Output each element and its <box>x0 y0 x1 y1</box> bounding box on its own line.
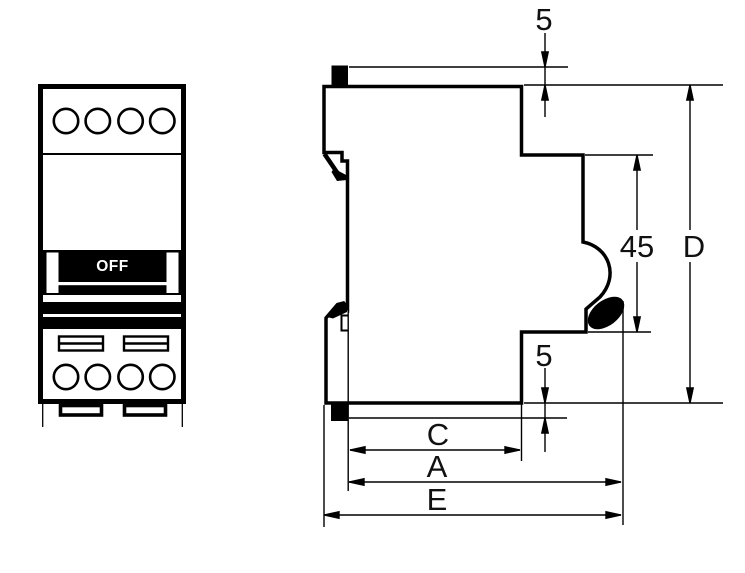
toggle-slit <box>59 282 167 285</box>
dim-label-overall-height: D <box>683 229 705 264</box>
din-clip-top-hook <box>332 169 348 182</box>
arrowhead-up-icon <box>542 85 548 100</box>
dim-label-top-clearance: 5 <box>535 2 552 37</box>
mcb-dimension-drawing: OFF <box>0 0 745 573</box>
side-view <box>324 66 630 422</box>
arrowhead-up-icon <box>687 85 693 100</box>
dim-label-width-e: E <box>427 482 448 517</box>
toggle-lower-band-2 <box>43 317 183 329</box>
arrowhead-down-icon <box>542 388 548 403</box>
arrowhead-left-icon <box>349 479 364 485</box>
arrowhead-down-icon <box>687 388 693 403</box>
arrowhead-left-icon <box>324 512 339 518</box>
mounting-tab <box>61 406 102 416</box>
toggle-lower-band-1 <box>43 302 183 314</box>
mounting-tab <box>125 406 166 416</box>
dim-width-e: E <box>324 482 621 518</box>
arrowhead-up-icon <box>634 155 640 170</box>
side-terminal-screw-top <box>332 66 349 86</box>
off-label: OFF <box>96 258 129 275</box>
dim-top-clearance: 5 <box>535 2 552 117</box>
dim-width-a: A <box>349 449 621 485</box>
toggle-recess-notch-right <box>167 253 179 294</box>
drawing-canvas: OFF <box>0 0 745 573</box>
arrowhead-right-icon <box>505 447 520 453</box>
mounting-tabs <box>61 406 166 416</box>
dim-label-bottom-clearance: 5 <box>535 338 552 373</box>
dim-bottom-clearance: 5 <box>535 338 552 452</box>
front-view: OFF <box>41 87 184 428</box>
toggle-recess-notch-left <box>47 253 59 294</box>
dim-width-c: C <box>350 417 520 453</box>
arrowhead-left-icon <box>350 447 365 453</box>
arrowhead-right-icon <box>606 479 621 485</box>
toggle-switch: OFF <box>43 250 183 329</box>
arrowhead-down-icon <box>542 52 548 67</box>
dim-label-width-c: C <box>427 417 449 452</box>
side-terminal-screw-bottom <box>331 402 348 421</box>
arrowhead-down-icon <box>634 317 640 332</box>
dim-overall-height: D <box>683 85 705 403</box>
arrowhead-up-icon <box>542 418 548 433</box>
arrowhead-right-icon <box>606 512 621 518</box>
side-profile-outline <box>324 87 610 404</box>
dim-label-width-a: A <box>427 449 448 484</box>
dim-handle-recess: 45 <box>620 155 654 332</box>
dim-label-handle-recess: 45 <box>620 229 654 264</box>
